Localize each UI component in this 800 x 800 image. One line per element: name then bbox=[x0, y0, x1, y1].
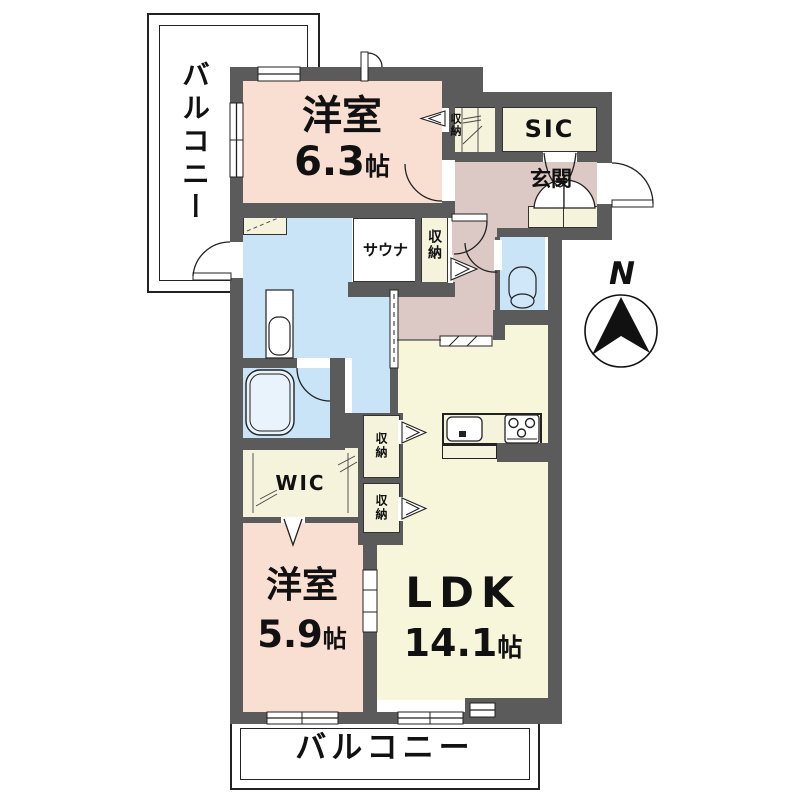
bedroom1-name: 洋室 bbox=[262, 96, 422, 136]
closet-top-slide-marks bbox=[462, 108, 482, 152]
compass-n-label: N bbox=[602, 259, 642, 290]
door-arc-bathroom bbox=[297, 368, 330, 401]
stove-icon bbox=[505, 415, 539, 443]
window-ldk-south-small bbox=[470, 703, 495, 717]
window-bedroom1-balcony bbox=[230, 103, 243, 177]
doorway-bedroom1 bbox=[442, 160, 455, 201]
storage-top-label: 収納 bbox=[450, 113, 461, 137]
door-corridor bbox=[452, 214, 487, 254]
window-bedroom2-south bbox=[267, 712, 338, 724]
bedroom1-size: 6.3帖 bbox=[262, 142, 422, 182]
bedroom2-name: 洋室 bbox=[232, 568, 372, 604]
sic-label: SIC bbox=[502, 117, 597, 141]
window-bedroom1-north bbox=[258, 67, 300, 81]
wic-fold-door bbox=[284, 519, 302, 545]
door-bedroom1-north bbox=[361, 52, 382, 81]
ldk-name: LDK bbox=[392, 572, 534, 614]
doorway-entry bbox=[597, 163, 612, 204]
storage-ldk-b-label: 収納 bbox=[375, 494, 387, 522]
storage-ldk-a-label: 収納 bbox=[375, 432, 387, 460]
kitchen-hanging-cabinet bbox=[440, 336, 492, 346]
toilet-icon bbox=[509, 267, 536, 308]
doorway-sic bbox=[543, 152, 577, 162]
balcony-top-label: バルコニー bbox=[180, 60, 208, 225]
north-compass-icon bbox=[585, 295, 657, 367]
bathtub-icon bbox=[246, 370, 294, 435]
genkan-label: 玄関 bbox=[508, 169, 594, 190]
entry-door bbox=[612, 163, 653, 207]
wash-cabinet-dash bbox=[247, 216, 283, 231]
window-ldk-south bbox=[398, 712, 463, 724]
bedroom2-size: 5.9帖 bbox=[232, 616, 372, 653]
doorway-bathroom bbox=[297, 358, 330, 368]
washbasin-icon bbox=[266, 290, 293, 358]
storage-hall-label: 収納 bbox=[427, 229, 441, 261]
kitchen-sink-icon bbox=[447, 417, 482, 441]
door-balcony bbox=[193, 242, 231, 280]
balcony-bottom-label: バルコニー bbox=[240, 733, 530, 764]
sliding-door-washroom bbox=[390, 290, 398, 368]
sauna-label: サウナ bbox=[353, 243, 418, 258]
floor-plan: 洋室 6.3帖 洋室 5.9帖 LDK 14.1帖 サウナ SIC 玄関 WIC… bbox=[0, 0, 800, 800]
wic-label: WIC bbox=[258, 473, 343, 493]
doorway-toilet bbox=[494, 240, 502, 270]
ldk-size: 14.1帖 bbox=[387, 624, 539, 662]
